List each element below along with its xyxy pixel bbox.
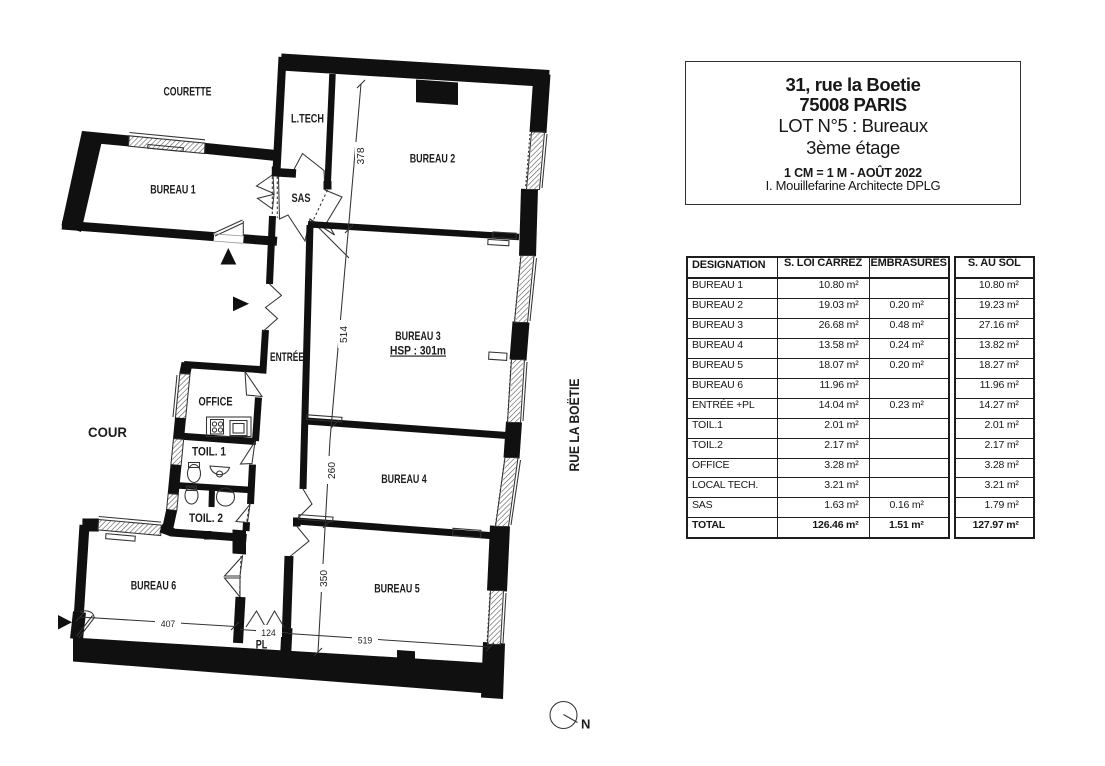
svg-text:L.TECH: L.TECH (291, 112, 324, 126)
svg-text:260: 260 (327, 462, 338, 479)
svg-text:124: 124 (261, 628, 276, 639)
svg-text:378: 378 (356, 147, 367, 164)
svg-text:TOIL. 1: TOIL. 1 (192, 445, 226, 459)
svg-text:RUE LA BOËTIE: RUE LA BOËTIE (567, 379, 582, 472)
svg-text:SAS: SAS (292, 191, 311, 205)
svg-text:PL: PL (256, 640, 268, 652)
svg-text:BUREAU 2: BUREAU 2 (410, 152, 456, 166)
svg-text:350: 350 (319, 570, 330, 587)
svg-text:HSP : 301m: HSP : 301m (390, 346, 446, 358)
svg-text:BUREAU 3: BUREAU 3 (395, 329, 441, 343)
svg-text:BUREAU 4: BUREAU 4 (381, 472, 427, 486)
svg-text:BUREAU 6: BUREAU 6 (131, 579, 177, 593)
svg-text:N: N (581, 717, 590, 732)
svg-text:COURETTE: COURETTE (164, 87, 212, 99)
svg-text:ENTRÉE: ENTRÉE (270, 349, 304, 364)
svg-text:TOIL. 2: TOIL. 2 (189, 511, 223, 525)
svg-text:BUREAU 5: BUREAU 5 (374, 582, 420, 596)
svg-text:OFFICE: OFFICE (199, 395, 233, 409)
svg-text:407: 407 (161, 619, 176, 630)
svg-text:BUREAU 1: BUREAU 1 (150, 183, 196, 197)
svg-text:514: 514 (339, 326, 350, 343)
svg-text:519: 519 (358, 636, 373, 647)
svg-text:COUR: COUR (88, 424, 127, 440)
